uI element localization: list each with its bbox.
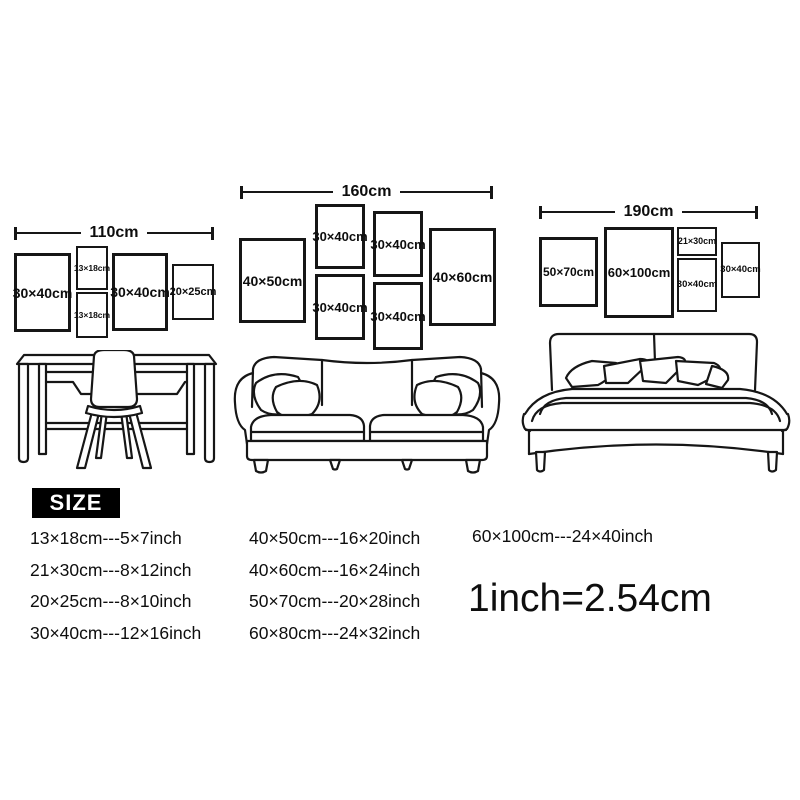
size-row: 20×25cm---8×10inch (30, 586, 201, 618)
size-heading: SIZE (32, 488, 120, 518)
size-row: 40×60cm---16×24inch (249, 555, 420, 587)
size-row: 21×30cm---8×12inch (30, 555, 201, 587)
size-row: 50×70cm---20×28inch (249, 586, 420, 618)
size-column-2: 40×50cm---16×20inch 40×60cm---16×24inch … (249, 523, 420, 649)
size-row: 40×50cm---16×20inch (249, 523, 420, 555)
size-column-3: 60×100cm---24×40inch (472, 521, 653, 553)
size-row: 60×100cm---24×40inch (472, 521, 653, 553)
size-row: 13×18cm---5×7inch (30, 523, 201, 555)
inch-cm-conversion: 1inch=2.54cm (468, 577, 712, 621)
size-row: 60×80cm---24×32inch (249, 618, 420, 650)
size-legend: SIZE 13×18cm---5×7inch 21×30cm---8×12inc… (0, 0, 800, 800)
size-row: 30×40cm---12×16inch (30, 618, 201, 650)
wall-art-size-chart: 110cm 30×40cm 13×18cm 13×18cm 30×40cm 20… (0, 0, 800, 800)
size-column-1: 13×18cm---5×7inch 21×30cm---8×12inch 20×… (30, 523, 201, 649)
